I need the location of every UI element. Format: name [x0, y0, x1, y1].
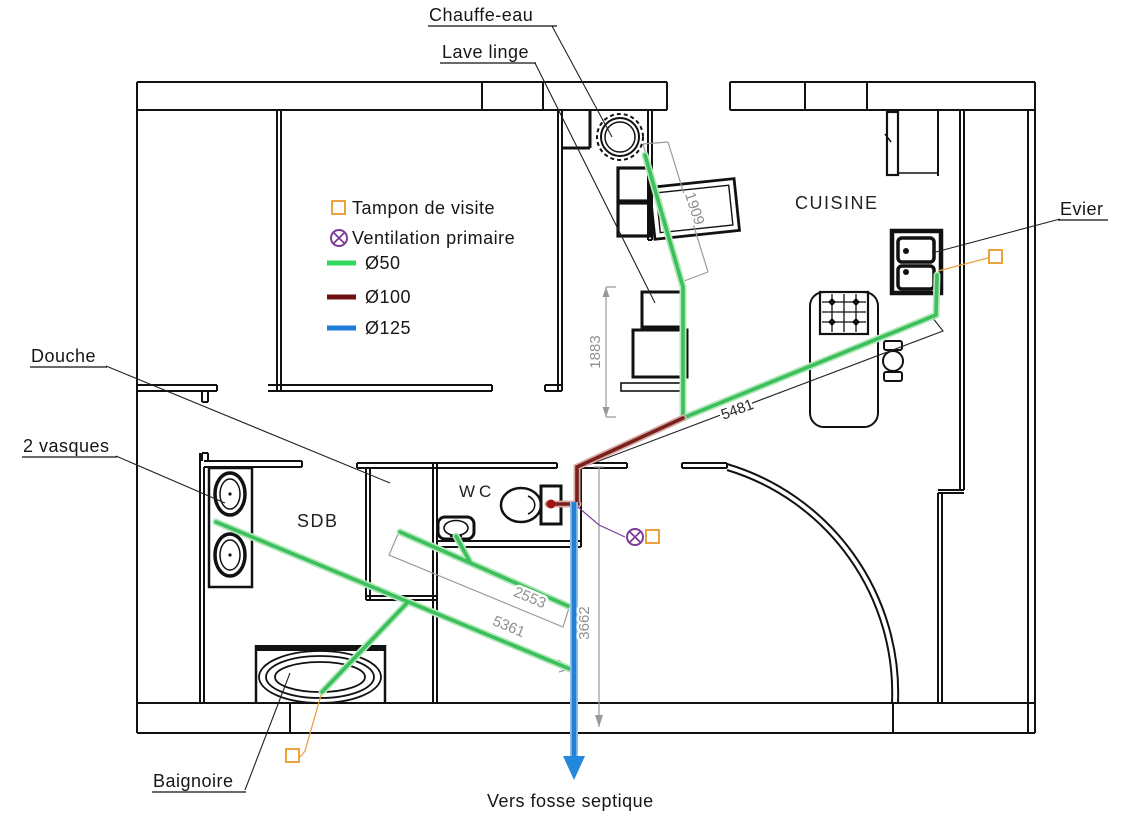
vent-symbol	[578, 507, 659, 545]
legend-item-d50: Ø50	[365, 253, 401, 273]
fridge	[885, 112, 938, 175]
label-baignoire: Baignoire	[153, 771, 234, 791]
wc-connection-dot	[547, 500, 556, 509]
dim-lave-linge: 1909	[681, 190, 707, 227]
room-wc: WC	[459, 482, 495, 501]
tampon-baignoire	[286, 695, 321, 762]
legend: Tampon de visite Ventilation primaire Ø5…	[327, 198, 515, 338]
legend-item-tampon: Tampon de visite	[352, 198, 495, 218]
septic-arrow	[563, 756, 585, 780]
dim-colonne: 1883	[587, 335, 604, 368]
door-arc	[727, 464, 898, 703]
hob	[820, 292, 868, 334]
label-chauffe-eau: Chauffe-eau	[429, 5, 533, 25]
label-douche: Douche	[31, 346, 96, 366]
legend-item-ventilation: Ventilation primaire	[352, 228, 515, 248]
floor-plan-svg: Tampon de visite Ventilation primaire Ø5…	[0, 0, 1123, 823]
legend-item-d125: Ø125	[365, 318, 411, 338]
label-lave-linge: Lave linge	[442, 42, 529, 62]
vasque-top	[215, 473, 245, 515]
tampon-square-evier	[989, 250, 1002, 263]
floor-plan-page: Tampon de visite Ventilation primaire Ø5…	[0, 0, 1123, 823]
room-sdb: SDB	[297, 511, 339, 531]
tampon-evier	[938, 250, 1002, 271]
vasque-bottom	[215, 534, 245, 576]
tampon-square-wc	[646, 530, 659, 543]
legend-tampon-icon	[332, 201, 345, 214]
leader-lines	[22, 26, 1108, 792]
label-2-vasques: 2 vasques	[23, 436, 110, 456]
label-evier: Evier	[1060, 199, 1104, 219]
legend-item-d100: Ø100	[365, 287, 411, 307]
tampon-square-baignoire	[286, 749, 299, 762]
room-cuisine: CUISINE	[795, 193, 879, 213]
dim-chute: 3662	[576, 606, 593, 639]
label-fosse-septique: Vers fosse septique	[487, 791, 654, 811]
